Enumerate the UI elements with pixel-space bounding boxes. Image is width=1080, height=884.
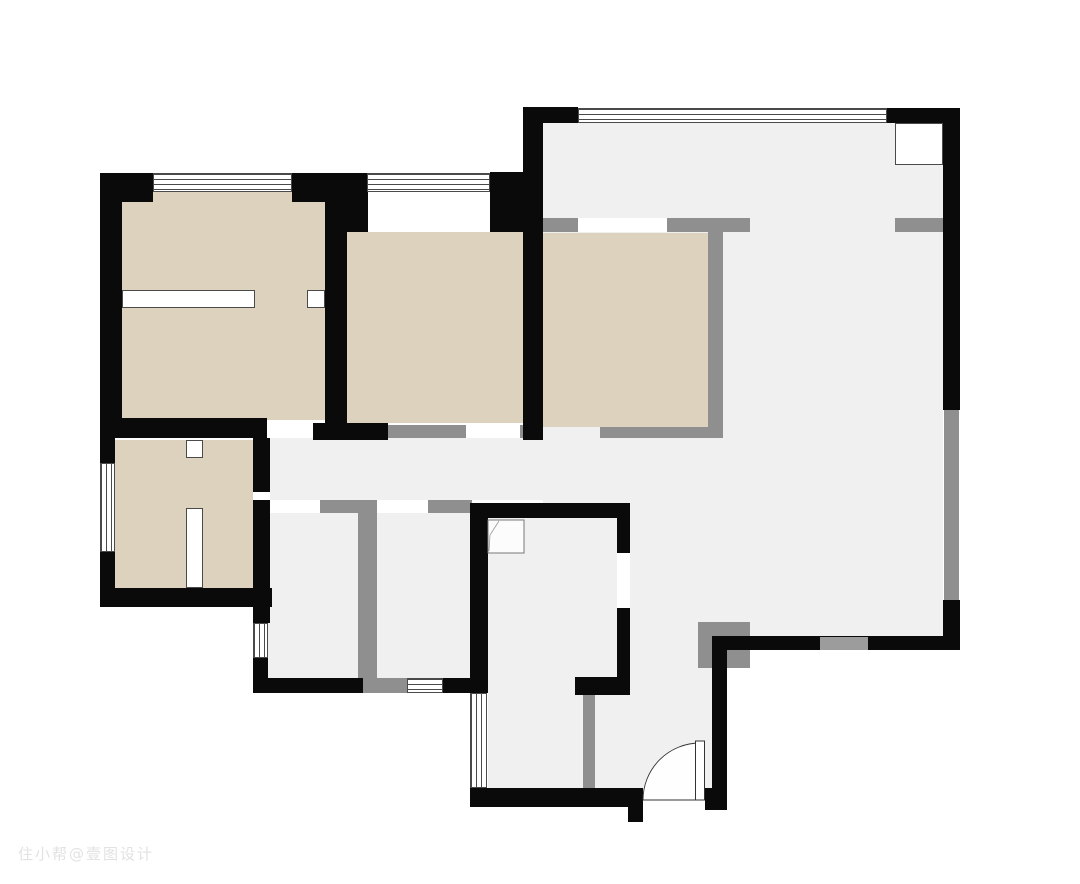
wall-bed1-bottom <box>100 418 267 438</box>
bed3-wall-bottom <box>600 427 723 438</box>
bed2-wall-bottom <box>388 425 466 438</box>
bedroom3-floor <box>543 233 708 427</box>
wall-entry-bottom <box>470 788 643 807</box>
wall-closet-bottom <box>100 588 272 607</box>
corridor-wall-a <box>320 500 358 513</box>
wall-bath-right-a <box>617 503 630 553</box>
wall-entry-right <box>712 636 727 807</box>
door-swing-arc <box>643 743 700 800</box>
wall-left <box>100 173 122 438</box>
watermark-text: 住小帮@壹图设计 <box>18 843 154 864</box>
wall-bed2-right-corner <box>490 172 527 232</box>
shower-pan <box>488 520 524 553</box>
bedroom2-floor <box>347 232 527 423</box>
rooms-divider <box>358 500 377 678</box>
corridor-floor <box>255 438 712 500</box>
wall-bath-left <box>470 503 488 693</box>
bed2-bay-recess <box>368 188 490 232</box>
bed1-window <box>153 173 292 192</box>
entry-floor-west <box>595 695 630 788</box>
bath-door-gap <box>617 553 630 608</box>
wall-rooma-left <box>253 500 270 623</box>
floorplan-drawing <box>0 0 1080 884</box>
shower-symbol <box>487 519 525 554</box>
wall-top-mid-b <box>292 192 325 202</box>
wall-bath-top <box>470 503 630 518</box>
door-leaf <box>696 741 705 800</box>
wall-right-upper <box>943 108 960 410</box>
room-a-door-gap <box>273 500 320 513</box>
closet-partition-top <box>186 440 203 458</box>
shaft-box <box>895 123 943 165</box>
wall-living-left <box>523 107 543 440</box>
closet-room-floor <box>115 440 255 588</box>
bed2-window <box>367 173 490 192</box>
rooms-divider-foot <box>362 678 407 693</box>
wall-closet-left-a <box>100 438 115 463</box>
wall-bed2-bottom-left <box>313 423 388 440</box>
wall-divider-bed12 <box>325 192 347 440</box>
wall-bed2-left-corner <box>347 188 368 232</box>
wall-bath-right-b <box>617 608 630 677</box>
bed3-wall-right <box>708 218 723 438</box>
room-b-window <box>407 678 443 693</box>
room-a-floor <box>268 513 362 678</box>
wall-entry-corner <box>705 788 727 810</box>
entry-door <box>640 738 706 804</box>
bath-gray-wall <box>583 695 595 788</box>
living-south-opening <box>820 637 868 650</box>
room-b-floor <box>377 513 472 678</box>
room-b-door-gap <box>380 500 428 513</box>
entry-window <box>470 693 487 788</box>
living-window <box>578 108 887 123</box>
bath-ext-floor <box>488 677 583 788</box>
kitchen-wall-stub <box>895 218 943 232</box>
wall-bath-bottom <box>575 677 630 695</box>
bed2-door-gap <box>466 425 520 438</box>
closet-door-gap <box>253 492 270 500</box>
bed1-door-gap <box>267 420 313 438</box>
closet-partition <box>186 508 203 588</box>
bed1-partition-a <box>122 290 255 308</box>
room-a-window <box>253 623 268 658</box>
bed3-door-gap <box>578 218 667 232</box>
corridor-wall-b <box>428 500 472 513</box>
balcony-rail-right <box>944 410 959 600</box>
bed1-partition-b <box>307 290 325 308</box>
wall-living-top-left <box>527 107 578 123</box>
floorplan-canvas: 住小帮@壹图设计 <box>0 0 1080 884</box>
wall-rooma-bottom <box>253 678 363 693</box>
closet-window <box>100 463 115 552</box>
